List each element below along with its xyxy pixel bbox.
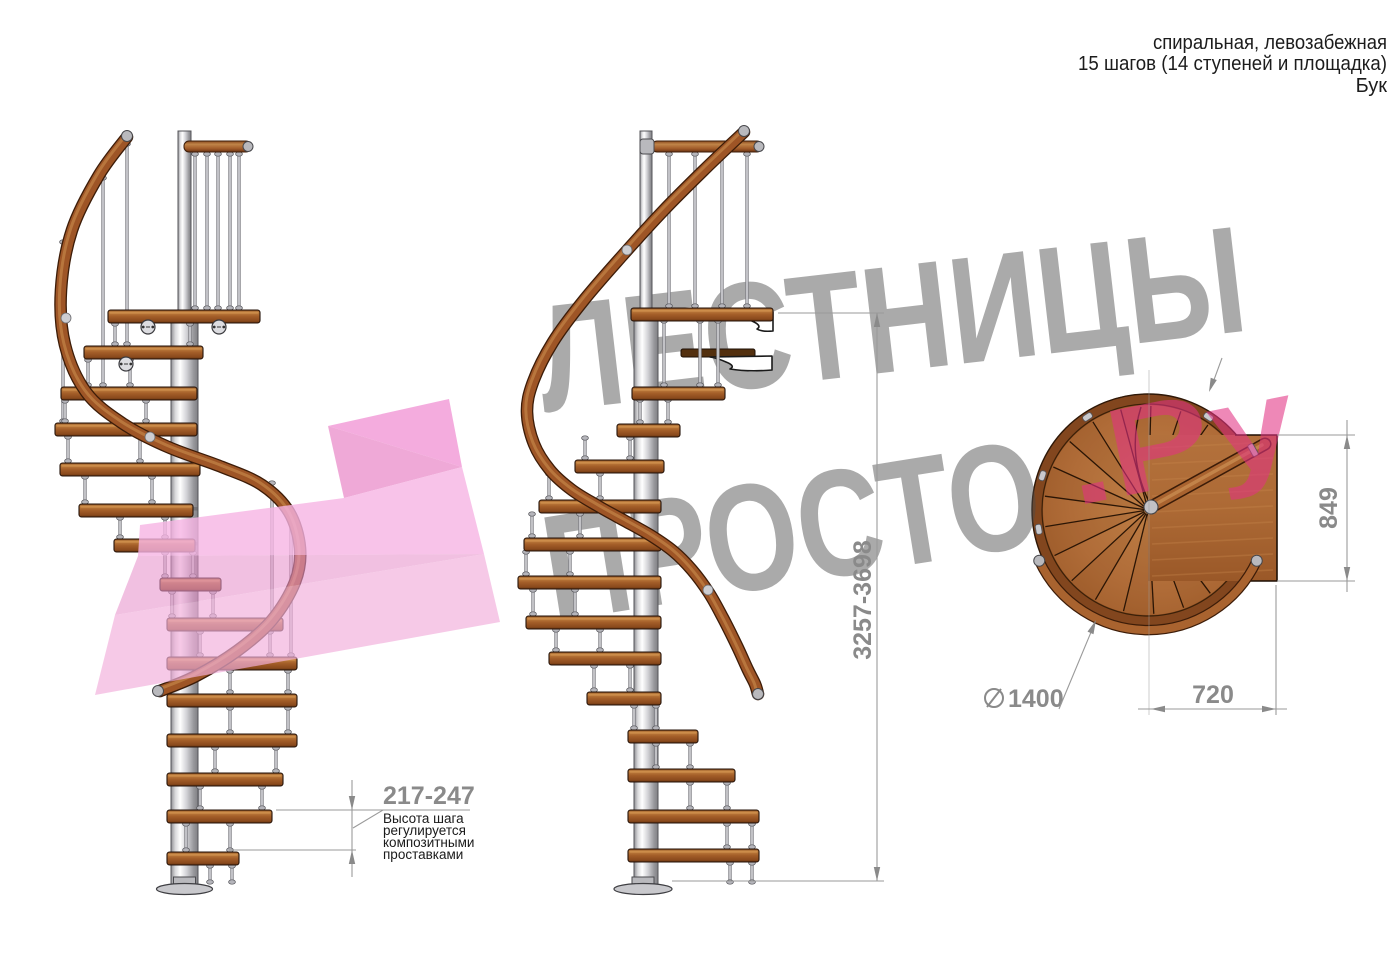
svg-text:849: 849 xyxy=(1315,487,1343,529)
svg-text:спиральная, левозабежная: спиральная, левозабежная xyxy=(1153,32,1387,54)
svg-text:Бук: Бук xyxy=(1356,75,1388,97)
svg-text:1400: 1400 xyxy=(1008,685,1064,713)
svg-text:720: 720 xyxy=(1192,681,1234,709)
svg-text:15 шагов (14 ступеней и площад: 15 шагов (14 ступеней и площадка) xyxy=(1078,53,1387,75)
svg-text:проставками: проставками xyxy=(383,847,463,862)
svg-text:3257-3698: 3257-3698 xyxy=(849,540,877,660)
svg-text:217-247: 217-247 xyxy=(383,782,475,810)
